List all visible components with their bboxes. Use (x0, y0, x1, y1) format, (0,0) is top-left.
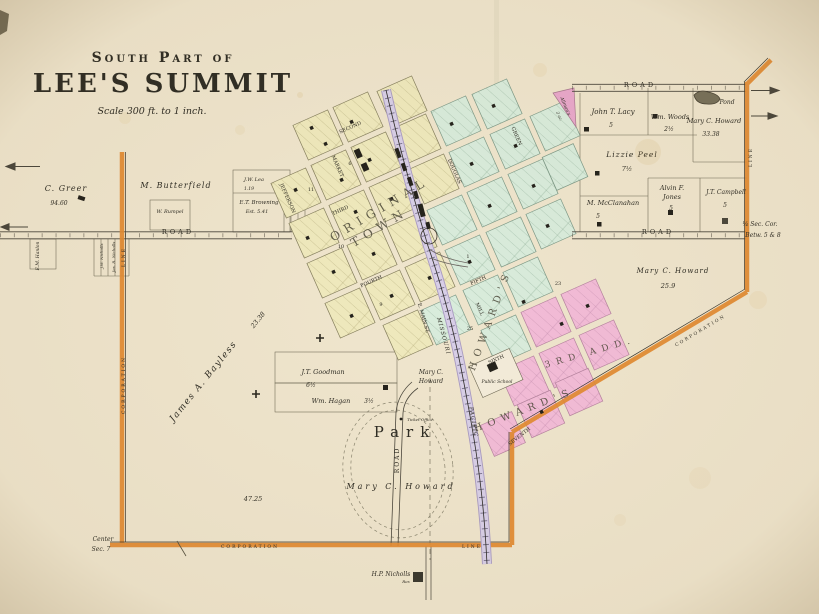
vignette-overlay (0, 0, 819, 614)
plat-map-lees-summit: South Part of LEE'S SUMMIT Scale 300 ft.… (0, 0, 819, 614)
map-canvas: South Part of LEE'S SUMMIT Scale 300 ft.… (0, 0, 819, 614)
